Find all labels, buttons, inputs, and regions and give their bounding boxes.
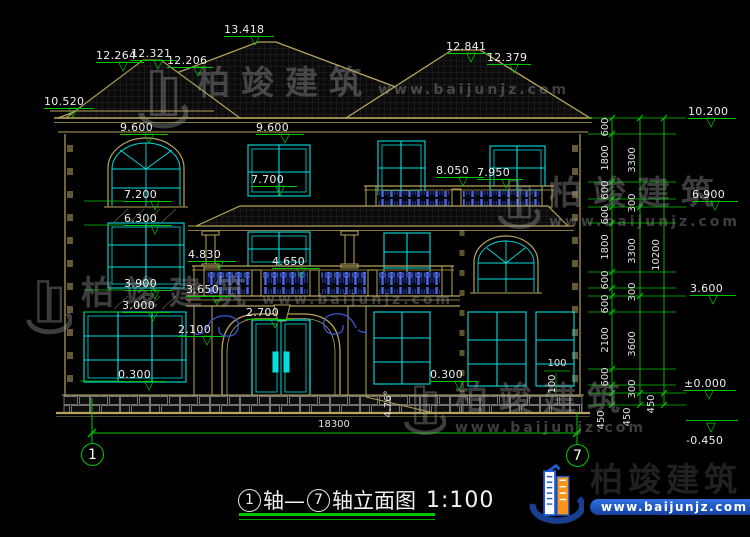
- title-axis-circle-start: 1: [238, 489, 261, 512]
- company-logo-icon: [528, 462, 584, 526]
- watermark: 柏竣建筑 www.baijunjz.com: [136, 66, 569, 132]
- watermark: 柏竣建筑 www.baijunjz.com: [24, 276, 453, 338]
- watermark-url: www.baijunjz.com: [549, 214, 740, 230]
- cad-elevation-drawing: 柏竣建筑 www.baijunjz.com 柏竣建筑 www.baijunjz.…: [0, 0, 750, 537]
- watermark-logo-icon: [24, 276, 72, 338]
- title-underline-thick: [239, 513, 435, 516]
- watermark-text: 柏竣建筑: [455, 379, 631, 418]
- watermark-url: www.baijunjz.com: [455, 420, 646, 436]
- axis-bubble-1: 1: [81, 443, 104, 466]
- title-scale: 1:100: [426, 488, 494, 513]
- watermark-text: 柏竣建筑: [549, 173, 725, 212]
- watermark-logo-icon: [496, 176, 540, 232]
- watermark: 柏竣建筑 www.baijunjz.com: [402, 382, 750, 438]
- watermark-text: 柏竣建筑: [197, 63, 373, 102]
- watermark-logo-icon: [402, 382, 446, 438]
- watermark-text: 柏竣建筑: [81, 273, 257, 312]
- company-name: 柏竣建筑: [590, 462, 742, 498]
- title-axis-circle-end: 7: [307, 489, 330, 512]
- company-logo: 柏竣建筑 www.baijunjz.com: [528, 462, 750, 526]
- watermark-url: www.baijunjz.com: [378, 82, 569, 98]
- watermark: 柏竣建筑 www.baijunjz.com: [496, 176, 750, 232]
- dimension-ticks: [609, 115, 667, 408]
- drawing-title: 1 轴— 7 轴立面图 1:100: [238, 485, 494, 515]
- watermark-logo-icon: [136, 66, 188, 132]
- company-url: www.baijunjz.com: [590, 499, 750, 515]
- title-underline-thin: [239, 519, 435, 520]
- watermark-url: www.baijunjz.com: [262, 292, 453, 308]
- title-suffix: 轴立面图: [332, 485, 416, 515]
- title-joiner: 轴—: [263, 485, 305, 515]
- wall-edges: [65, 134, 580, 395]
